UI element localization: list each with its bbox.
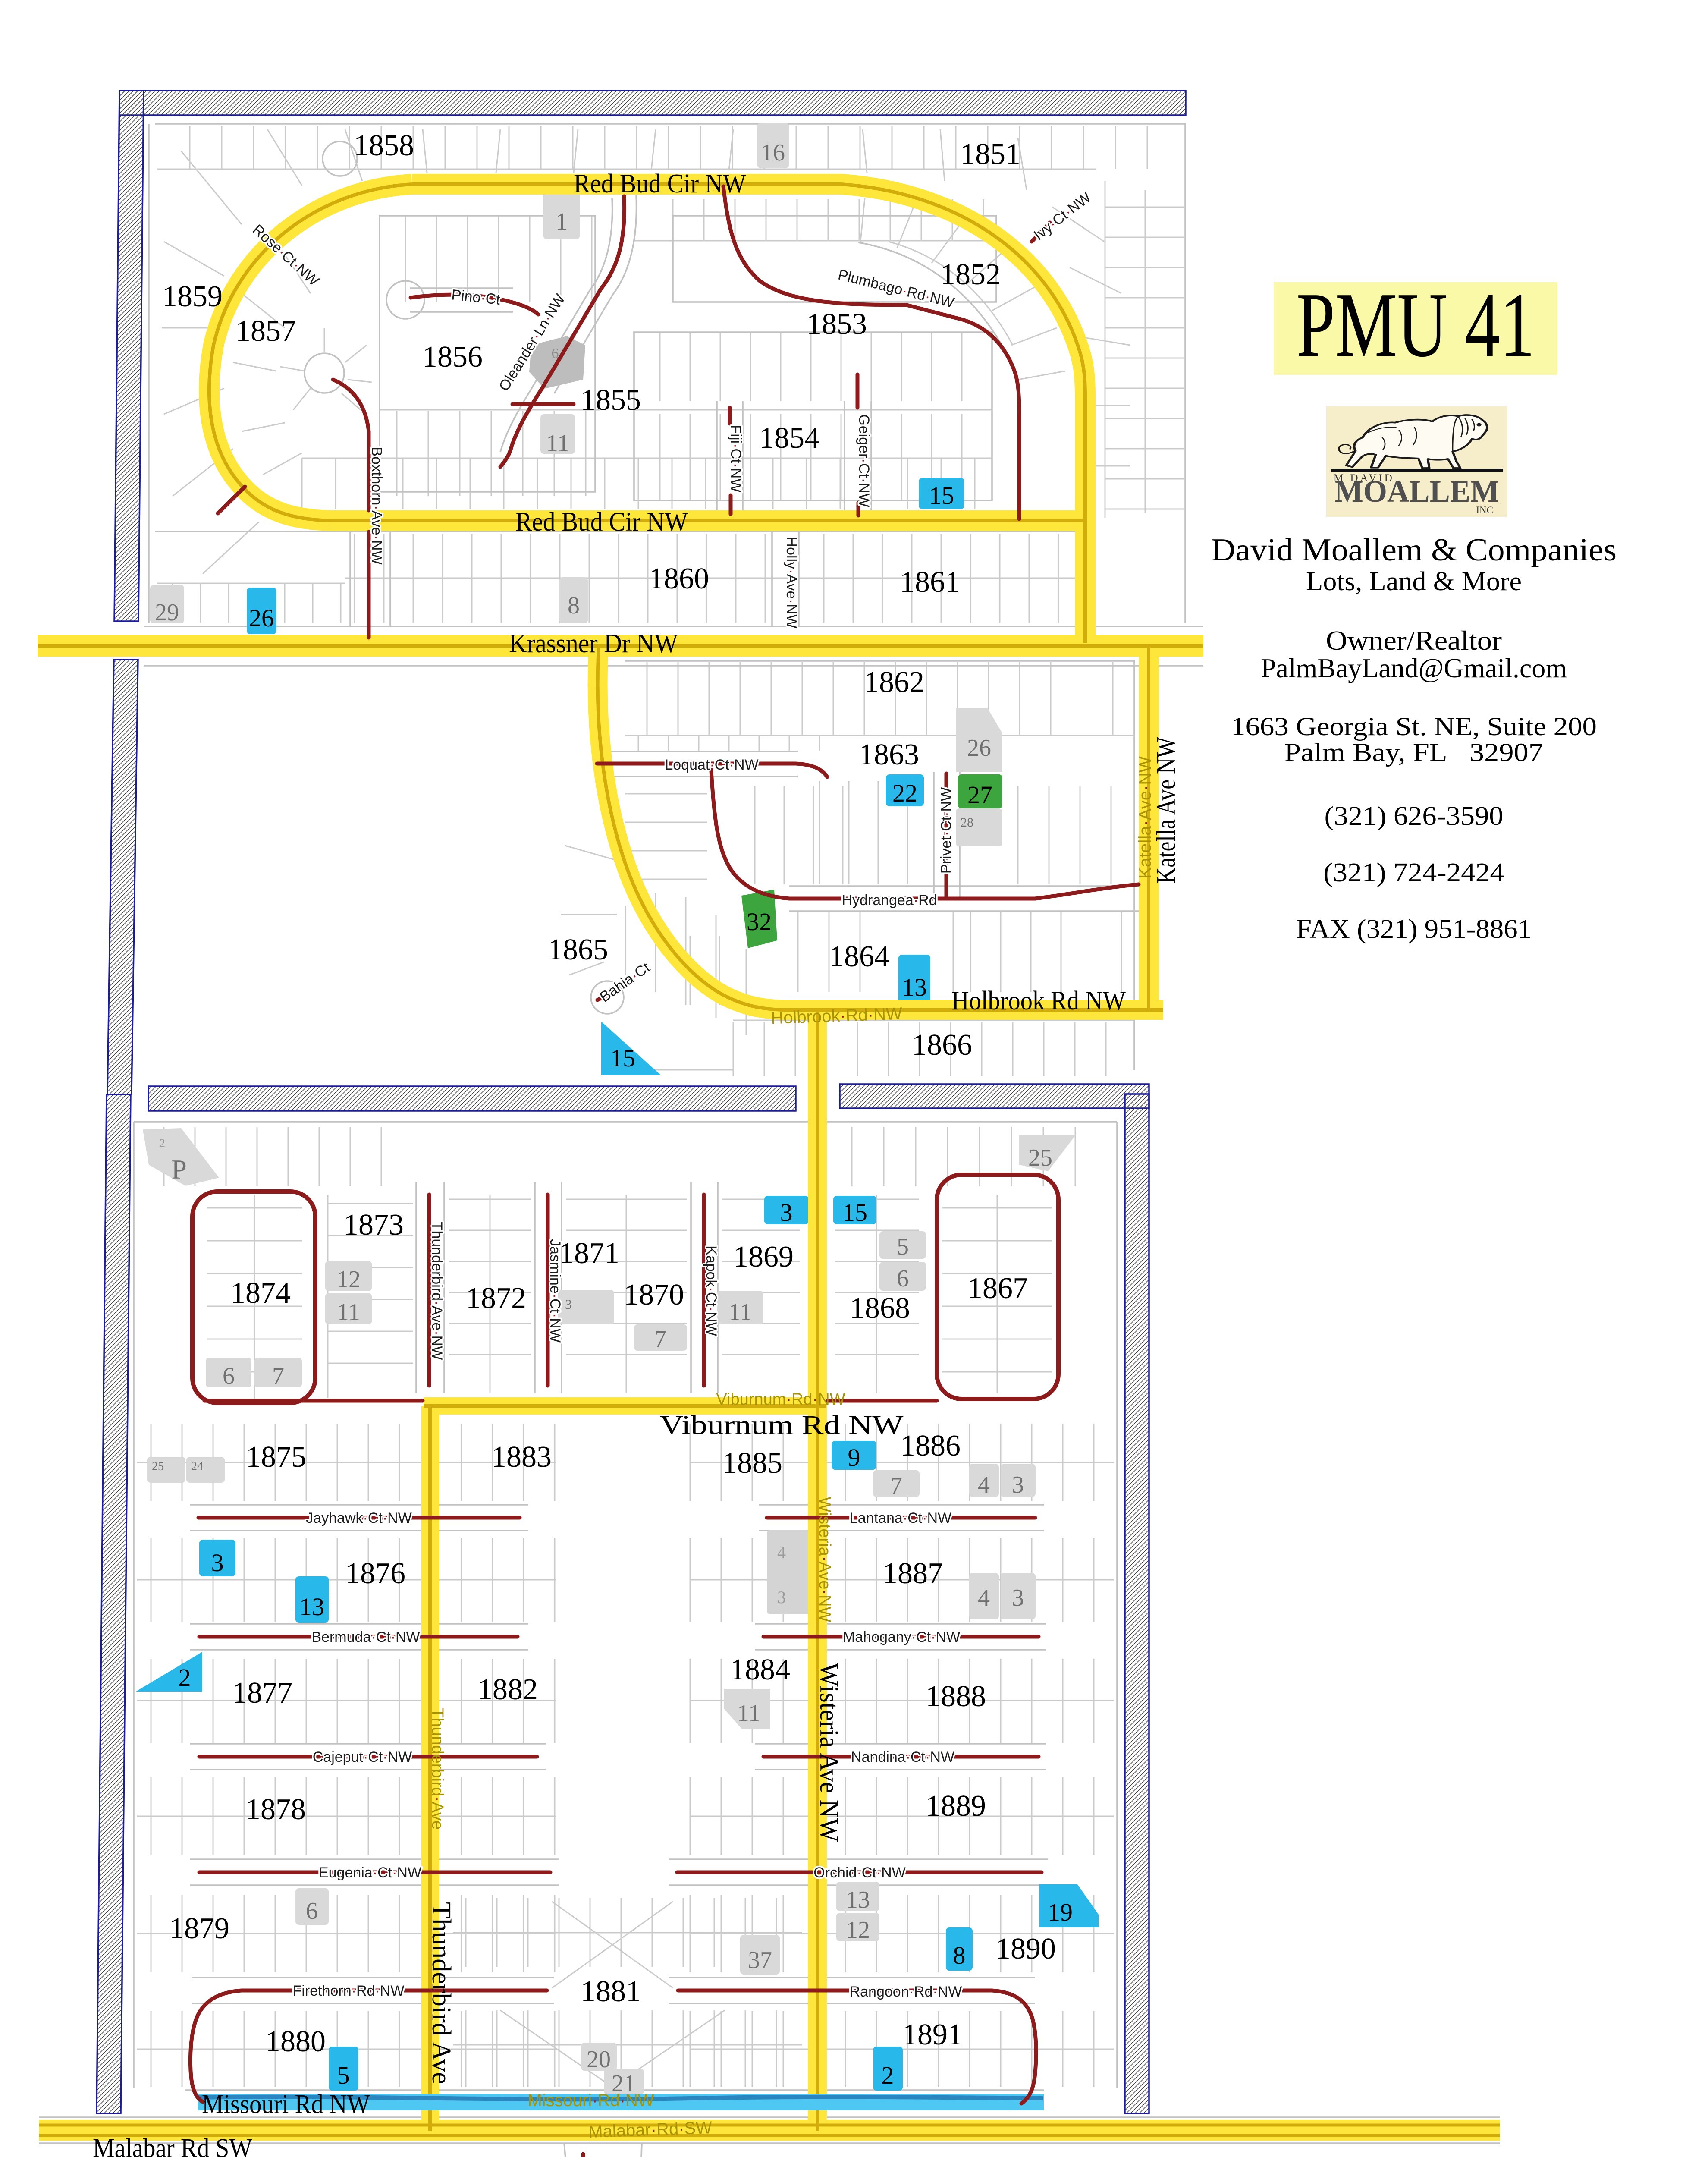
svg-text:2: 2 (160, 1137, 165, 1149)
svg-text:1854: 1854 (759, 421, 819, 455)
svg-text:1856: 1856 (422, 340, 483, 374)
svg-text:5: 5 (897, 1233, 909, 1260)
svg-text:6: 6 (897, 1265, 909, 1292)
svg-text:1866: 1866 (912, 1028, 972, 1062)
svg-text:15: 15 (842, 1198, 867, 1226)
svg-text:1879: 1879 (169, 1912, 229, 1945)
svg-text:(321) 626-3590: (321) 626-3590 (1325, 802, 1504, 831)
svg-text:6: 6 (306, 1898, 318, 1924)
svg-text:1871: 1871 (559, 1237, 619, 1270)
svg-text:1888: 1888 (926, 1680, 986, 1713)
svg-text:1860: 1860 (649, 562, 709, 595)
svg-text:28: 28 (961, 815, 973, 830)
svg-text:1869: 1869 (733, 1240, 794, 1273)
svg-text:1663 Georgia St. NE, Suite 200: 1663 Georgia St. NE, Suite 200 (1231, 712, 1597, 741)
svg-text:7: 7 (272, 1363, 284, 1390)
svg-text:27: 27 (967, 781, 992, 809)
svg-text:Nandina·Ct·NW: Nandina·Ct·NW (851, 1749, 954, 1765)
svg-text:12: 12 (846, 1917, 870, 1943)
svg-text:3: 3 (211, 1549, 224, 1577)
svg-text:2: 2 (179, 1663, 191, 1692)
svg-text:MOALLEM: MOALLEM (1334, 474, 1499, 509)
svg-text:Holbrook Rd NW: Holbrook Rd NW (951, 986, 1126, 1016)
svg-text:7: 7 (654, 1326, 666, 1352)
svg-text:1877: 1877 (232, 1676, 292, 1710)
svg-text:1873: 1873 (343, 1208, 404, 1242)
svg-text:1868: 1868 (850, 1292, 910, 1325)
svg-text:24: 24 (191, 1460, 203, 1473)
svg-text:1882: 1882 (477, 1673, 538, 1706)
svg-text:Cajeput·Ct·NW: Cajeput·Ct·NW (313, 1749, 412, 1765)
svg-text:1: 1 (556, 208, 568, 235)
svg-text:3: 3 (565, 1296, 572, 1312)
svg-text:19: 19 (1048, 1898, 1073, 1926)
svg-text:11: 11 (337, 1299, 360, 1326)
svg-text:Geiger·Ct·NW: Geiger·Ct·NW (856, 414, 872, 507)
svg-text:Owner/Realtor: Owner/Realtor (1326, 625, 1502, 656)
svg-text:Loquat·Ct·NW: Loquat·Ct·NW (665, 757, 758, 773)
svg-text:13: 13 (846, 1887, 870, 1913)
svg-text:1863: 1863 (859, 738, 919, 771)
svg-text:9: 9 (848, 1443, 860, 1472)
svg-text:1886: 1886 (900, 1429, 961, 1462)
svg-text:37: 37 (748, 1947, 772, 1974)
svg-text:13: 13 (902, 973, 927, 1001)
svg-text:26: 26 (967, 735, 991, 761)
svg-text:Thunderbird·Ave·NW: Thunderbird·Ave·NW (429, 1222, 445, 1360)
svg-text:25: 25 (1028, 1145, 1052, 1171)
svg-text:1865: 1865 (548, 933, 608, 966)
svg-text:22: 22 (892, 779, 917, 807)
svg-text:8: 8 (568, 592, 580, 619)
svg-text:PalmBayLand@Gmail.com: PalmBayLand@Gmail.com (1261, 653, 1567, 683)
svg-text:1891: 1891 (902, 2018, 963, 2051)
svg-text:3: 3 (1012, 1472, 1024, 1498)
svg-text:Eugenia·Ct·NW: Eugenia·Ct·NW (319, 1865, 421, 1881)
svg-text:4: 4 (777, 1543, 786, 1562)
svg-text:11: 11 (737, 1700, 760, 1727)
svg-text:Red Bud Cir NW: Red Bud Cir NW (574, 169, 746, 198)
svg-text:1870: 1870 (624, 1278, 684, 1311)
svg-text:11: 11 (546, 430, 569, 457)
svg-text:Viburnum·Rd·NW: Viburnum·Rd·NW (716, 1390, 845, 1409)
svg-text:4: 4 (978, 1585, 990, 1611)
svg-text:Firethorn·Rd·NW: Firethorn·Rd·NW (293, 1983, 405, 1999)
svg-text:Viburnum Rd NW: Viburnum Rd NW (660, 1411, 904, 1440)
svg-text:Thunderbird Ave: Thunderbird Ave (427, 1902, 456, 2084)
svg-text:1885: 1885 (722, 1446, 782, 1480)
svg-text:David Moallem & Companies: David Moallem & Companies (1211, 532, 1617, 568)
svg-text:Holly·Ave·NW: Holly·Ave·NW (783, 537, 800, 629)
svg-text:8: 8 (953, 1941, 966, 1969)
svg-text:FAX (321) 951-8861: FAX (321) 951-8861 (1296, 915, 1532, 944)
svg-text:Kapok·Ct·NW: Kapok·Ct·NW (703, 1245, 719, 1336)
svg-text:1874: 1874 (230, 1277, 291, 1310)
svg-text:(321) 724-2424: (321) 724-2424 (1323, 858, 1504, 887)
svg-text:6: 6 (223, 1363, 235, 1390)
svg-text:PMU 41: PMU 41 (1297, 273, 1535, 376)
svg-text:P: P (171, 1154, 187, 1185)
svg-text:1867: 1867 (967, 1272, 1028, 1305)
svg-text:Lantana·Ct·NW: Lantana·Ct·NW (850, 1510, 951, 1526)
svg-text:1858: 1858 (354, 129, 414, 162)
svg-text:Palm Bay, FL 32907: Palm Bay, FL 32907 (1284, 738, 1543, 767)
svg-text:16: 16 (761, 139, 785, 166)
svg-text:Bermuda·Ct·NW: Bermuda·Ct·NW (311, 1629, 420, 1645)
svg-text:1884: 1884 (730, 1653, 790, 1686)
svg-text:32: 32 (747, 908, 772, 936)
svg-text:2: 2 (882, 2061, 894, 2089)
svg-text:1875: 1875 (246, 1440, 306, 1474)
svg-text:13: 13 (299, 1593, 324, 1621)
svg-text:Mahogany·Ct·NW: Mahogany·Ct·NW (843, 1629, 960, 1645)
svg-text:1859: 1859 (162, 280, 223, 313)
svg-text:25: 25 (152, 1460, 164, 1473)
svg-text:3: 3 (1012, 1585, 1024, 1611)
svg-text:3: 3 (777, 1588, 786, 1607)
svg-text:1872: 1872 (466, 1282, 526, 1315)
svg-text:3: 3 (780, 1198, 793, 1226)
svg-text:1852: 1852 (940, 258, 1001, 291)
svg-text:1887: 1887 (882, 1557, 943, 1590)
svg-text:15: 15 (929, 481, 954, 509)
svg-text:11: 11 (728, 1299, 752, 1326)
svg-text:26: 26 (249, 604, 274, 632)
svg-text:Missouri·Rd·NW: Missouri·Rd·NW (527, 2091, 654, 2110)
svg-text:Privet·Ct·NW: Privet·Ct·NW (938, 787, 954, 874)
svg-text:12: 12 (336, 1266, 361, 1293)
svg-text:1889: 1889 (926, 1789, 986, 1823)
svg-text:29: 29 (155, 599, 179, 626)
svg-text:Red Bud Cir NW: Red Bud Cir NW (515, 507, 688, 537)
svg-text:15: 15 (610, 1044, 635, 1072)
svg-text:1853: 1853 (807, 308, 867, 341)
svg-text:Fiji·Ct·NW: Fiji·Ct·NW (728, 425, 744, 493)
svg-text:Boxthorn·Ave·NW: Boxthorn·Ave·NW (368, 446, 385, 564)
svg-text:1857: 1857 (235, 314, 296, 348)
svg-text:1862: 1862 (864, 666, 924, 699)
svg-text:Thunderbird·Ave: Thunderbird·Ave (428, 1708, 446, 1830)
svg-text:Hydrangea·Rd: Hydrangea·Rd (841, 892, 937, 909)
svg-text:1876: 1876 (345, 1557, 405, 1590)
svg-text:1881: 1881 (581, 1975, 641, 2008)
svg-text:1851: 1851 (960, 138, 1020, 171)
svg-text:1855: 1855 (581, 384, 641, 417)
svg-text:4: 4 (978, 1472, 990, 1498)
svg-text:7: 7 (890, 1472, 902, 1499)
svg-text:Malabar Rd SW: Malabar Rd SW (93, 2134, 252, 2157)
svg-text:Katella Ave NW: Katella Ave NW (1152, 737, 1181, 884)
svg-text:1864: 1864 (829, 940, 889, 973)
svg-text:Orchid·Ct·NW: Orchid·Ct·NW (813, 1865, 905, 1881)
svg-text:Krassner Dr NW: Krassner Dr NW (509, 629, 678, 658)
svg-text:Rangoon·Rd·NW: Rangoon·Rd·NW (850, 1984, 962, 2000)
svg-text:INC: INC (1476, 505, 1493, 516)
svg-text:Missouri Rd NW: Missouri Rd NW (202, 2090, 370, 2119)
svg-text:Wisteria·Ave·NW: Wisteria·Ave·NW (816, 1497, 834, 1622)
svg-text:1861: 1861 (900, 566, 960, 599)
svg-text:1883: 1883 (491, 1440, 552, 1474)
svg-text:Jayhawk·Ct·NW: Jayhawk·Ct·NW (306, 1510, 412, 1526)
svg-text:5: 5 (337, 2061, 350, 2089)
svg-text:Lots, Land & More: Lots, Land & More (1306, 567, 1522, 596)
svg-text:1890: 1890 (995, 1932, 1056, 1965)
svg-text:1878: 1878 (245, 1793, 306, 1826)
svg-text:Wisteria Ave NW: Wisteria Ave NW (814, 1663, 844, 1842)
svg-text:1880: 1880 (265, 2025, 326, 2058)
